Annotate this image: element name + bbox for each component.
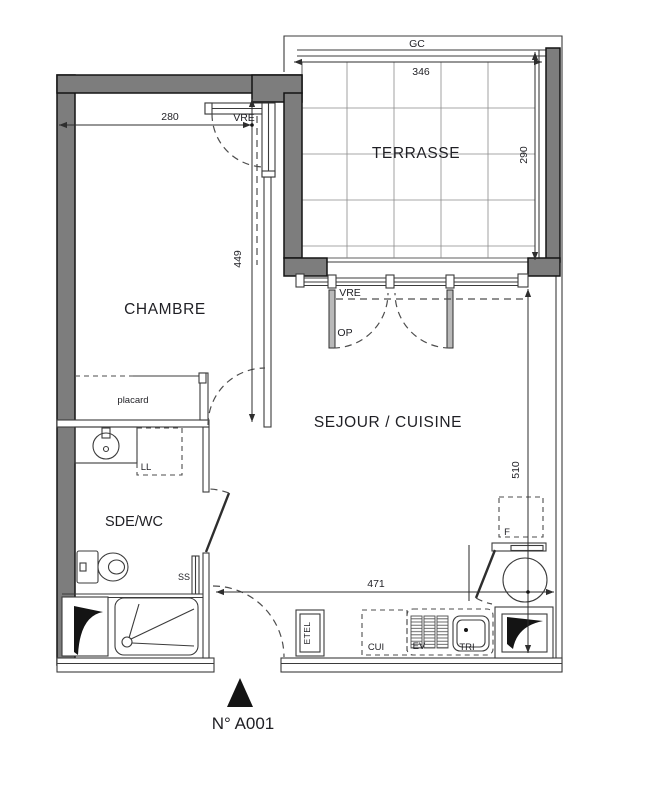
bathroom-door	[206, 489, 229, 552]
technical-duct	[62, 597, 108, 656]
terrace-bay-doors	[296, 274, 528, 348]
wall-segment	[284, 258, 327, 276]
living-room-label: SEJOUR / CUISINE	[314, 414, 462, 431]
living-width-dim: 471	[367, 578, 385, 590]
bathroom-label: SDE/WC	[105, 514, 163, 530]
electrical-panel-label: ETEL	[302, 622, 312, 645]
wall-segment	[57, 75, 75, 665]
water-heater	[503, 558, 547, 602]
entrance-door-swing-arc	[213, 586, 284, 657]
floor-plan-page: GC 346 TERRASSE 290 280 VRE 449 CHAMBRE …	[0, 0, 672, 800]
unit-number-label: N° A001	[212, 714, 275, 733]
technical-duct	[495, 607, 553, 658]
sorting-label: TRI	[459, 642, 474, 653]
wall-segment	[528, 258, 560, 276]
living-depth-dim: 510	[510, 461, 522, 479]
closet-door	[476, 550, 495, 598]
closet-label: placard	[117, 395, 148, 406]
wall-segment	[546, 48, 560, 262]
bathroom-fixtures	[62, 427, 203, 656]
toilet	[77, 551, 128, 583]
bay-window-label: VRE	[339, 287, 361, 299]
terrace-label: TERRASSE	[372, 145, 460, 162]
floor-plan-drawing: GC 346 TERRASSE 290 280 VRE 449 CHAMBRE …	[0, 0, 672, 800]
terrace-width-dim: 346	[412, 66, 430, 78]
bedroom-window-label: VRE	[233, 112, 255, 124]
closet-placard	[75, 373, 206, 383]
utility-closet	[469, 497, 553, 658]
terrace-depth-dim: 290	[518, 146, 530, 164]
door-swing-arc	[333, 293, 388, 348]
washing-machine-label: LL	[141, 462, 152, 473]
door-swing-arc	[395, 293, 450, 348]
railing-label: GC	[409, 38, 425, 50]
dimension-lines	[59, 52, 554, 653]
walls	[57, 48, 560, 665]
wall-segment	[284, 93, 302, 258]
kitchen-counter-label: CUI	[368, 642, 384, 653]
facade-outline	[284, 36, 562, 672]
fridge-label: F	[504, 527, 510, 538]
bedroom-depth-dim: 449	[232, 250, 244, 268]
door-leaf	[329, 290, 335, 348]
bedroom-door-swing-arc	[208, 368, 265, 425]
bedroom-width-dim: 280	[161, 111, 179, 123]
towel-dryer	[192, 556, 199, 594]
entrance-marker-icon	[227, 678, 253, 707]
opening-label: OP	[337, 327, 352, 339]
shower-tray	[115, 598, 198, 655]
washbasin	[75, 427, 137, 463]
bedroom-label: CHAMBRE	[124, 301, 206, 318]
towel-dryer-label: SS	[178, 572, 190, 582]
sink-label: EV	[413, 641, 426, 652]
